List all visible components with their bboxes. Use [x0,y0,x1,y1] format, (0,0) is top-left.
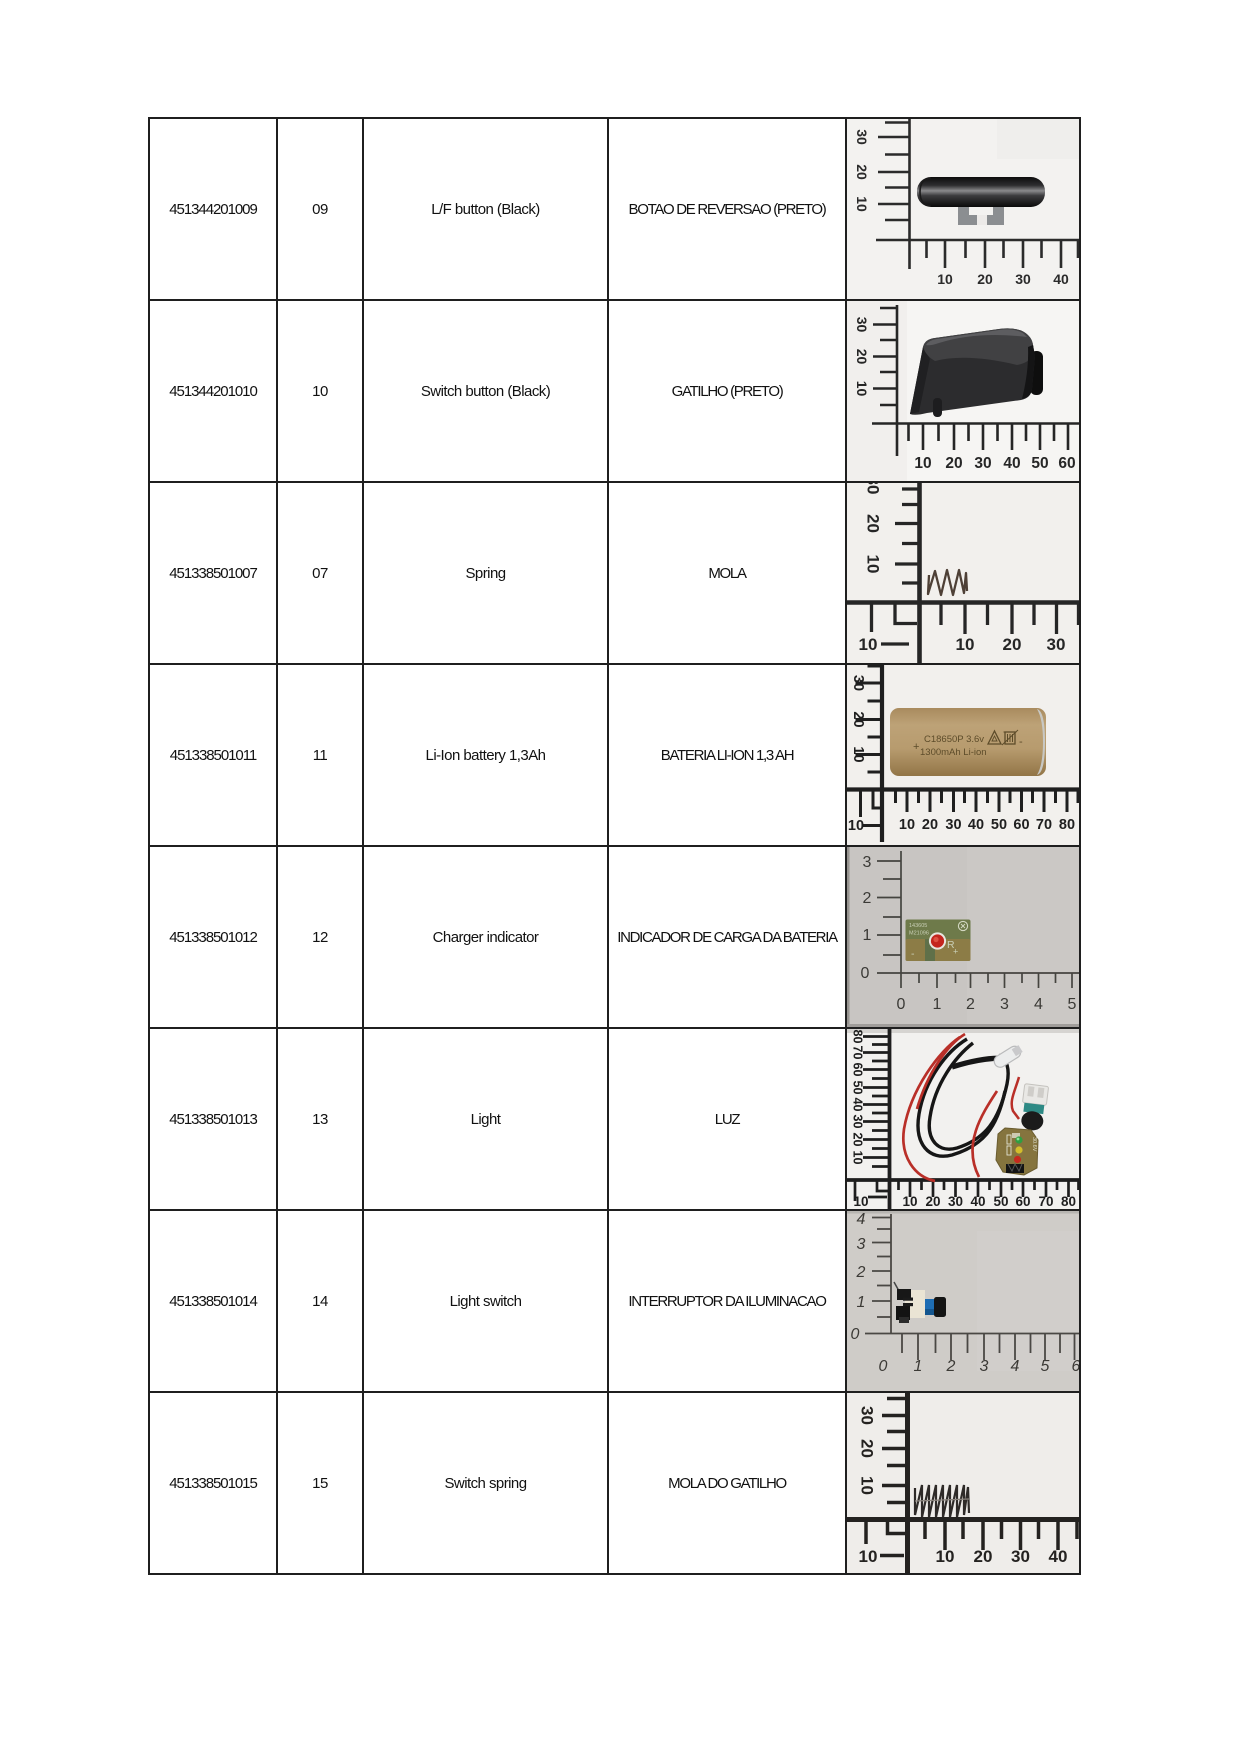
svg-text:30: 30 [864,483,883,494]
svg-text:C18650P 3.6v: C18650P 3.6v [924,734,984,745]
svg-text:10: 10 [858,1476,877,1495]
svg-text:20: 20 [851,1133,865,1147]
svg-text:50: 50 [851,1081,865,1095]
svg-text:10: 10 [914,455,931,472]
svg-text:143605: 143605 [909,923,927,929]
svg-text:50: 50 [1031,455,1048,472]
svg-text:30: 30 [1015,271,1031,287]
svg-text:10: 10 [848,818,864,834]
svg-text:-: - [1019,736,1023,748]
svg-text:80: 80 [1061,1194,1076,1209]
svg-text:20: 20 [922,817,938,833]
svg-text:0: 0 [879,1358,888,1375]
svg-text:30: 30 [945,817,961,833]
svg-text:10: 10 [853,1194,868,1209]
svg-text:20: 20 [850,711,866,727]
svg-text:10: 10 [854,196,870,212]
svg-text:40: 40 [851,1098,865,1112]
svg-text:20: 20 [945,455,962,472]
svg-text:20: 20 [974,1547,993,1566]
svg-text:+: + [913,741,919,753]
svg-text:50: 50 [991,817,1007,833]
svg-text:30: 30 [850,675,866,691]
svg-text:30.6V: 30.6V [1031,1137,1037,1152]
svg-text:80: 80 [1059,817,1075,833]
svg-text:1: 1 [933,996,942,1013]
svg-text:40: 40 [1053,271,1069,287]
svg-text:40: 40 [968,817,984,833]
svg-text:2: 2 [856,1264,866,1281]
svg-text:1: 1 [863,927,872,944]
svg-text:20: 20 [854,349,870,365]
svg-text:10: 10 [936,1547,955,1566]
svg-text:-: - [911,948,915,960]
svg-text:60: 60 [851,1063,865,1077]
svg-text:10: 10 [859,635,878,654]
svg-text:M21096: M21096 [909,931,929,937]
svg-text:10: 10 [859,1547,878,1566]
svg-text:4: 4 [1034,996,1043,1013]
svg-text:60: 60 [1015,1194,1030,1209]
svg-text:20: 20 [1003,635,1022,654]
svg-text:20: 20 [854,164,870,180]
svg-text:0: 0 [897,996,906,1013]
svg-text:10: 10 [937,271,953,287]
svg-text:20: 20 [858,1439,877,1458]
svg-text:3: 3 [857,1236,866,1253]
svg-text:40: 40 [970,1194,985,1209]
svg-text:10: 10 [851,1151,865,1165]
svg-text:30: 30 [854,317,870,333]
svg-text:6: 6 [1072,1358,1079,1375]
svg-text:10: 10 [850,746,866,762]
svg-text:70: 70 [851,1046,865,1060]
svg-text:20: 20 [925,1194,940,1209]
svg-text:60: 60 [1058,455,1075,472]
svg-text:30: 30 [1047,635,1066,654]
svg-text:80: 80 [851,1030,865,1044]
svg-text:30: 30 [858,1406,877,1425]
svg-text:0: 0 [861,965,870,982]
svg-text:10: 10 [854,381,870,397]
svg-text:30: 30 [854,129,870,145]
svg-text:30: 30 [974,455,991,472]
svg-text:+: + [953,947,958,957]
svg-text:4: 4 [857,1211,866,1228]
svg-text:70: 70 [1038,1194,1053,1209]
svg-text:40: 40 [1049,1547,1068,1566]
svg-text:3: 3 [863,854,872,871]
svg-text:4: 4 [1011,1358,1020,1375]
svg-text:10: 10 [902,1194,917,1209]
svg-text:70: 70 [1036,817,1052,833]
svg-text:2: 2 [863,890,872,907]
svg-text:0: 0 [851,1326,860,1343]
svg-text:2: 2 [946,1358,956,1375]
svg-text:5: 5 [1068,996,1077,1013]
svg-text:1: 1 [857,1294,866,1311]
svg-text:10: 10 [864,555,883,574]
svg-text:3: 3 [980,1358,989,1375]
svg-text:60: 60 [1013,817,1029,833]
svg-text:20: 20 [864,514,883,533]
svg-text:5: 5 [1041,1358,1050,1375]
svg-text:1300mAh Li-ion: 1300mAh Li-ion [920,747,987,758]
svg-text:10: 10 [899,817,915,833]
svg-text:30: 30 [948,1194,963,1209]
svg-text:30: 30 [1011,1547,1030,1566]
svg-text:20: 20 [977,271,993,287]
svg-text:2: 2 [966,996,975,1013]
svg-text:30: 30 [851,1115,865,1129]
svg-text:1: 1 [914,1358,923,1375]
svg-text:50: 50 [993,1194,1008,1209]
svg-text:40: 40 [1003,455,1020,472]
svg-text:3: 3 [1000,996,1009,1013]
svg-text:10: 10 [956,635,975,654]
